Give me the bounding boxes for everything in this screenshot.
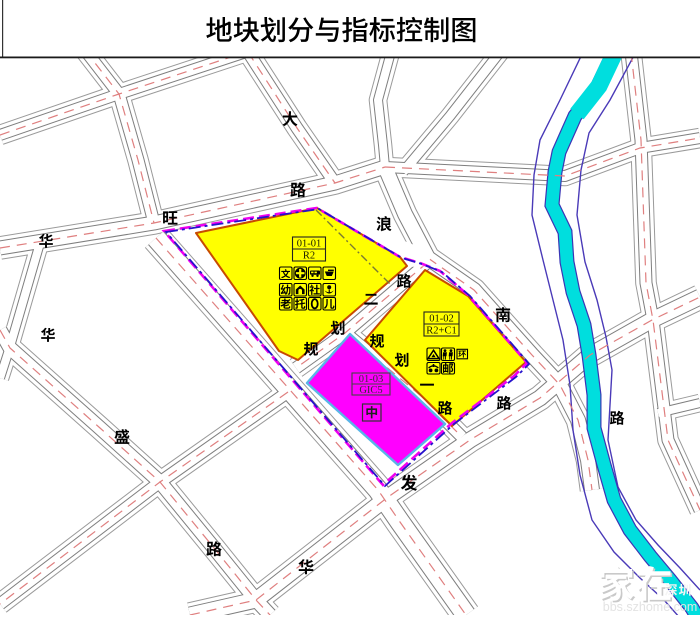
- svg-text:01-02: 01-02: [429, 314, 454, 325]
- svg-text:R2+C1: R2+C1: [426, 326, 456, 337]
- svg-text:01-01: 01-01: [297, 239, 322, 250]
- svg-text:bbs.szhome.com: bbs.szhome.com: [603, 600, 697, 614]
- svg-text:R2: R2: [303, 251, 315, 262]
- svg-text:01-03: 01-03: [359, 374, 384, 385]
- svg-text:GIC5: GIC5: [359, 385, 382, 396]
